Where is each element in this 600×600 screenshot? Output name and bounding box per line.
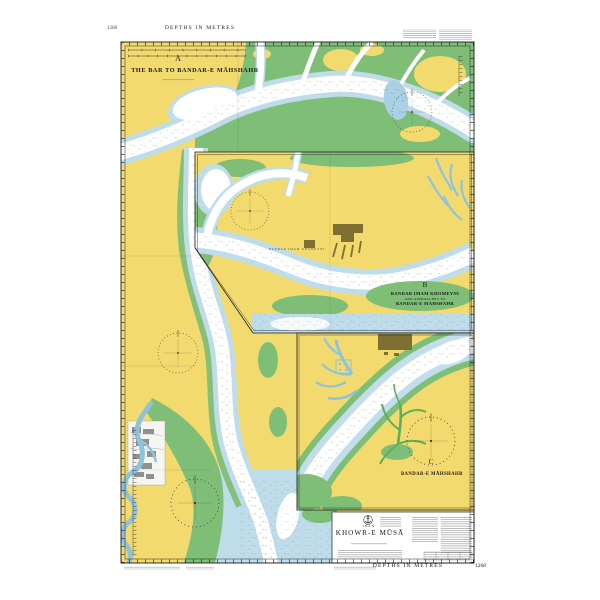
tank-farm-area (378, 334, 412, 350)
anchor-icon (364, 515, 373, 524)
depths-units-label-bottom: DEPTHS IN METRES (348, 564, 468, 570)
panel-b-land-label: BANDAR IMAM KHOMEYNI (253, 249, 341, 252)
town-plan (128, 421, 165, 485)
chart-map (0, 0, 600, 600)
depths-units-label-top: DEPTHS IN METRES (140, 26, 260, 32)
title-block-country: IRAN (334, 525, 404, 528)
panel-b-title-line3: BANDAR-E MĀHSHAHR (372, 302, 478, 307)
panel-a-letter: A (167, 55, 189, 63)
chart-number-bottom: 1268 (456, 564, 486, 570)
title-block-title: KHOWR-E MŪSĀ (328, 530, 412, 538)
panel-a-title: THE BAR TO BANDAR-E MĀHSHAHR (121, 68, 269, 75)
panel-b-letter: B (407, 282, 443, 289)
panel-c-letter: C (421, 459, 441, 466)
panel-c-title: BANDAR-E MĀHSHAHR (384, 472, 480, 477)
chart-number-top: 1268 (100, 26, 124, 31)
nautical-chart-page: 1268 DEPTHS IN METRES A THE BAR TO BANDA… (0, 0, 600, 600)
